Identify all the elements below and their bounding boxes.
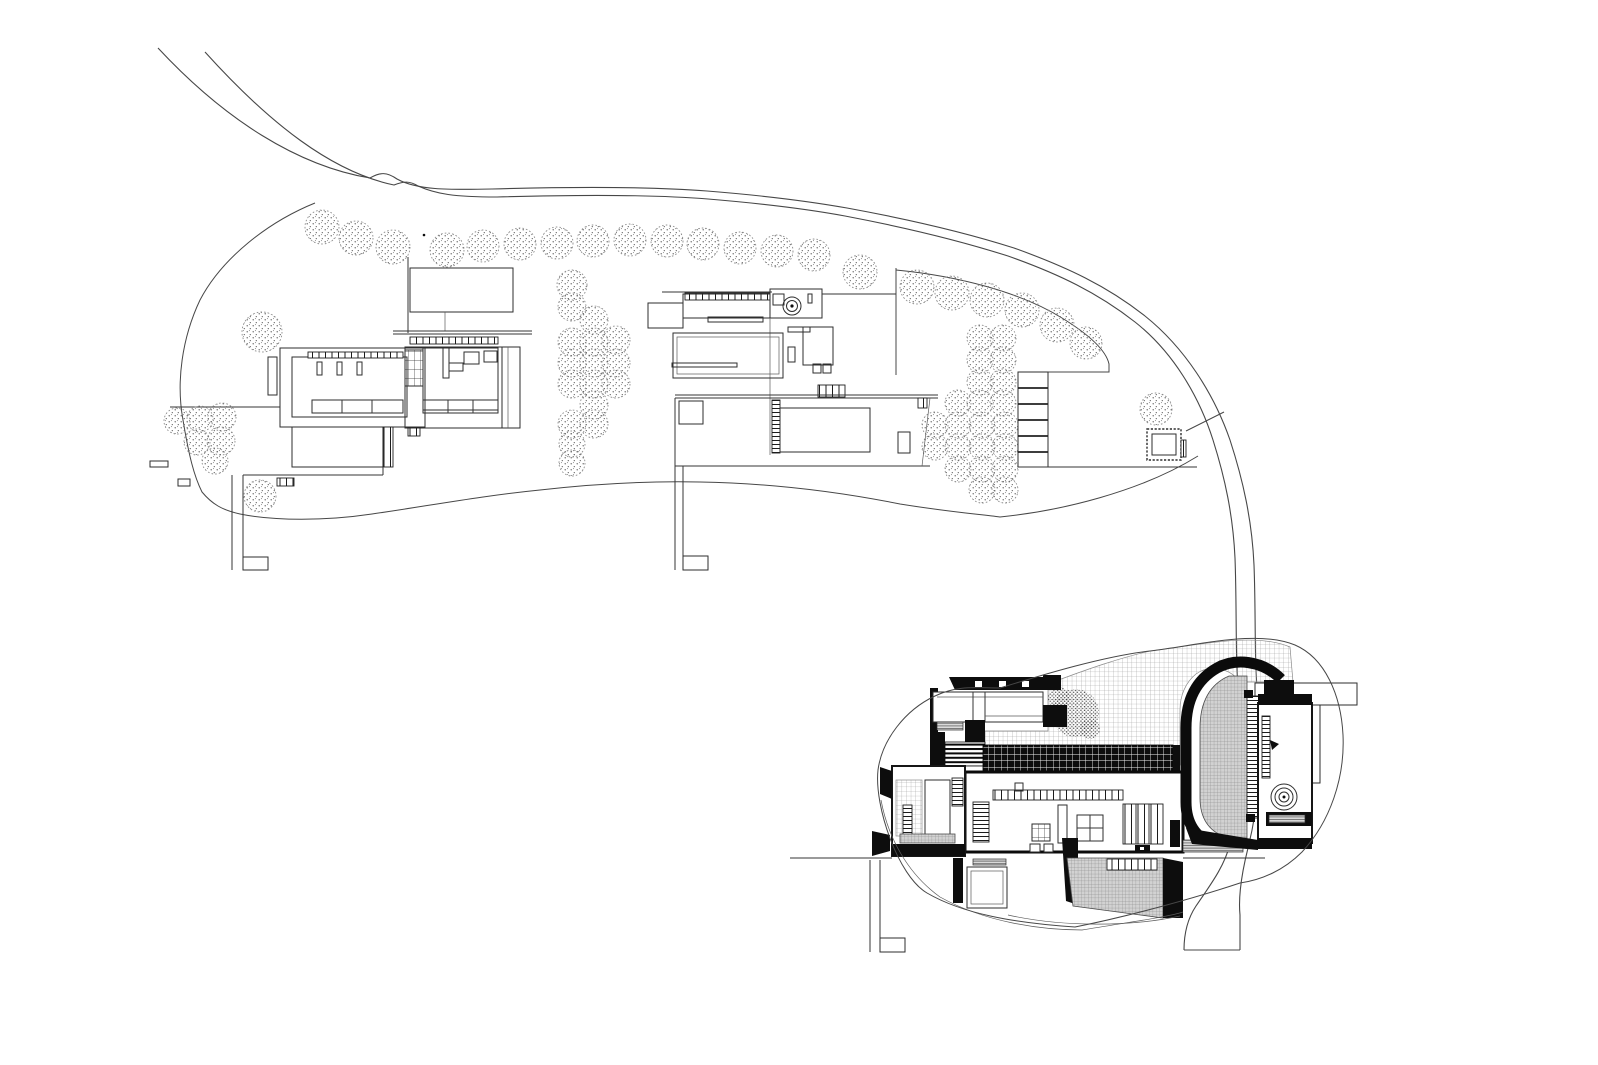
trees-circle xyxy=(614,224,646,256)
main-house-rect xyxy=(880,938,905,952)
trees-circle xyxy=(724,232,756,264)
trees-circle xyxy=(651,225,683,257)
main-house-rect xyxy=(1107,859,1157,870)
villa-west-rect xyxy=(357,362,362,375)
main-house-path xyxy=(880,767,892,799)
main-house-rect xyxy=(945,742,985,766)
trees-circle xyxy=(970,283,1004,317)
trees-circle xyxy=(922,434,948,460)
main-house-rect xyxy=(983,745,1173,772)
villa-west-rect xyxy=(383,427,393,467)
main-house-rect xyxy=(1140,847,1144,850)
main-house-rect xyxy=(937,722,963,730)
trees-circle xyxy=(244,480,276,512)
main-house-path xyxy=(1163,858,1183,918)
trees-circle xyxy=(967,390,993,416)
villa-west-rect xyxy=(410,337,498,344)
villa-west-rect xyxy=(423,348,498,410)
villa-middle-rect xyxy=(677,337,779,374)
main-house-rect xyxy=(1043,705,1067,727)
main-house-rect xyxy=(965,720,985,743)
main-house-rect xyxy=(1312,705,1320,783)
trees-circle xyxy=(467,230,499,262)
trees-circle xyxy=(687,228,719,260)
villa-west-rect xyxy=(443,348,449,378)
main-house-rect xyxy=(967,867,1007,908)
trees-circle xyxy=(935,276,969,310)
villa-middle-rect xyxy=(918,398,927,408)
trees-circle xyxy=(202,448,228,474)
main-house-rect xyxy=(971,871,1003,904)
villa-middle-rect xyxy=(648,303,683,328)
villa-middle-rect xyxy=(683,556,708,570)
trees-circle xyxy=(945,456,971,482)
main-house-rect xyxy=(1262,716,1270,778)
villa-middle-rect xyxy=(808,294,812,303)
main-house-rect xyxy=(1032,824,1050,841)
villa-west-rect xyxy=(268,357,277,395)
site-boundary-rect xyxy=(150,461,168,467)
main-house-rect xyxy=(930,732,945,765)
villa-west-rect xyxy=(308,352,403,358)
trees-circle xyxy=(504,228,536,260)
main-house-rect xyxy=(1244,690,1253,698)
trees-circle xyxy=(164,408,190,434)
main-house-rect xyxy=(892,844,965,856)
trees-circle xyxy=(208,403,236,431)
main-house-rect xyxy=(1269,815,1305,823)
main-house-rect xyxy=(900,834,955,843)
villa-middle-rect xyxy=(679,401,703,424)
villa-west-rect xyxy=(292,357,407,417)
villa-west-rect xyxy=(280,348,425,427)
roads-line xyxy=(1186,412,1224,431)
trees-circle xyxy=(602,370,630,398)
main-house-rect xyxy=(1170,820,1180,847)
layer-parking-garage xyxy=(1018,372,1197,467)
layer-villa-middle xyxy=(648,289,938,570)
main-house-rect xyxy=(953,858,963,903)
villa-west-rect xyxy=(243,557,268,570)
trees-circle xyxy=(1005,293,1039,327)
main-house-rect xyxy=(933,692,1043,722)
main-house-rect xyxy=(1246,814,1255,822)
villa-middle-rect xyxy=(780,408,870,452)
trees-circle xyxy=(1070,327,1102,359)
main-house-rect xyxy=(1173,745,1180,772)
site-plan-sheet xyxy=(0,0,1598,1065)
villa-west-rect xyxy=(464,352,479,364)
main-house-rect xyxy=(973,859,1006,865)
main-house-circle xyxy=(1283,796,1286,799)
main-house-rect xyxy=(1022,681,1029,687)
trees-circle xyxy=(900,270,934,304)
villa-middle-rect xyxy=(772,400,780,453)
trees-circle xyxy=(339,221,373,255)
villa-middle-rect xyxy=(788,327,810,332)
trees-circle xyxy=(798,239,830,271)
main-house-rect xyxy=(1030,844,1040,852)
drawing-layers xyxy=(150,48,1357,952)
villa-west-rect xyxy=(423,400,498,413)
trees-circle xyxy=(969,477,995,503)
site-boundary-rect xyxy=(178,479,190,486)
villa-west-rect xyxy=(449,363,463,371)
trees-circle xyxy=(376,230,410,264)
villa-middle-rect xyxy=(898,432,910,453)
trees-circle xyxy=(559,450,585,476)
villa-middle-circle xyxy=(790,304,793,307)
main-house-rect xyxy=(1043,675,1061,690)
villa-west-rect xyxy=(337,362,342,375)
layer-main-house xyxy=(790,638,1357,952)
main-house-rect xyxy=(975,681,982,687)
main-house-circle xyxy=(1080,719,1100,739)
main-house-path xyxy=(872,831,890,856)
villa-west-rect xyxy=(317,362,322,375)
villa-middle-rect xyxy=(788,347,795,362)
parking-garage-rect xyxy=(1181,440,1186,457)
trees-circle xyxy=(541,227,573,259)
villa-west-rect xyxy=(408,428,420,436)
main-house-path xyxy=(1200,676,1247,838)
main-house-rect xyxy=(1044,844,1053,852)
villa-west-rect xyxy=(292,427,383,467)
trees-circle xyxy=(580,410,608,438)
trees-circle xyxy=(1140,393,1172,425)
villa-west-rect xyxy=(484,351,497,362)
main-house-rect xyxy=(973,802,989,842)
trees-circle xyxy=(430,233,464,267)
main-house-rect xyxy=(1258,694,1312,705)
villa-west-rect xyxy=(410,268,513,312)
main-house-rect xyxy=(993,790,1123,800)
villa-middle-rect xyxy=(773,294,784,305)
villa-west-rect xyxy=(277,478,294,486)
villa-middle-rect xyxy=(803,327,833,365)
villa-west-rect xyxy=(502,347,520,428)
villa-west-rect xyxy=(405,350,423,386)
trees-circle xyxy=(1040,308,1074,342)
main-house-rect xyxy=(952,778,963,806)
villa-west-rect xyxy=(312,400,403,413)
villa-middle-rect xyxy=(673,333,783,378)
trees-circle xyxy=(577,225,609,257)
trees-circle xyxy=(423,234,426,237)
trees-circle xyxy=(305,210,339,244)
trees-circle xyxy=(184,429,210,455)
main-house-rect xyxy=(1123,804,1163,844)
main-house-rect xyxy=(1264,680,1294,696)
trees-circle xyxy=(843,255,877,289)
site-plan-drawing xyxy=(0,0,1598,1065)
main-house-rect xyxy=(1258,838,1312,849)
trees-circle xyxy=(242,312,282,352)
villa-middle-rect xyxy=(672,363,737,367)
trees-circle xyxy=(992,477,1018,503)
layer-villa-west xyxy=(232,257,532,570)
trees-circle xyxy=(761,235,793,267)
trees-circle xyxy=(990,390,1016,416)
